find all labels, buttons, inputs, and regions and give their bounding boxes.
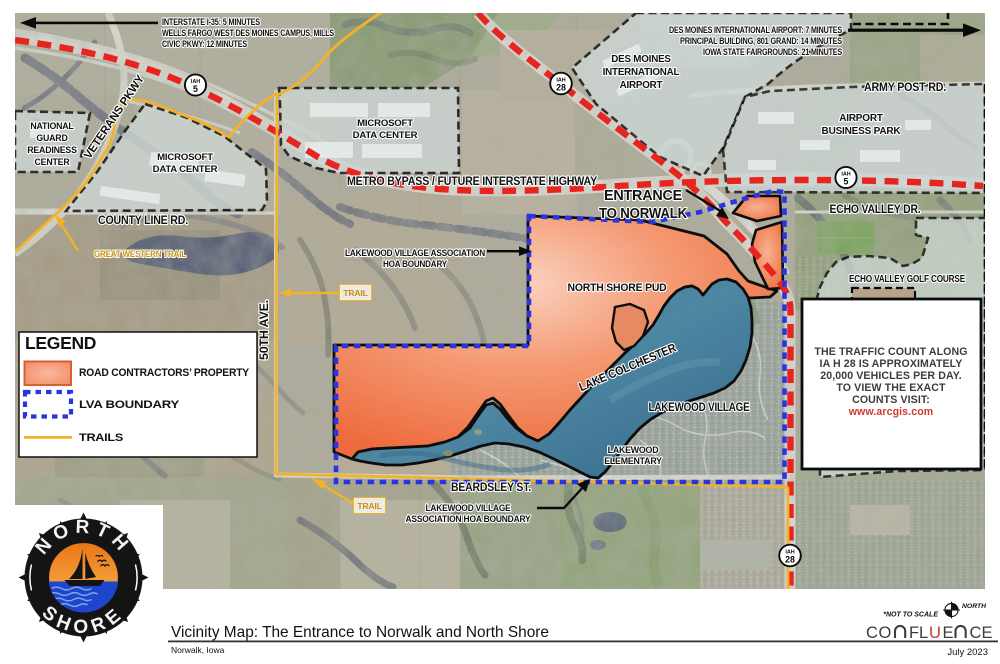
svg-text:DATA CENTER: DATA CENTER bbox=[153, 164, 218, 175]
svg-text:AIRPORT: AIRPORT bbox=[620, 80, 663, 91]
svg-text:MICROSOFT: MICROSOFT bbox=[357, 118, 413, 129]
svg-text:TRAILS: TRAILS bbox=[79, 432, 123, 444]
svg-text:LAKEWOOD: LAKEWOOD bbox=[608, 445, 659, 455]
svg-text:METRO BYPASS / FUTURE INTERSTA: METRO BYPASS / FUTURE INTERSTATE HIGHWAY bbox=[347, 174, 597, 188]
svg-text:C: C bbox=[866, 624, 878, 642]
svg-text:BUSINESS PARK: BUSINESS PARK bbox=[822, 126, 902, 137]
svg-text:DATA CENTER: DATA CENTER bbox=[353, 130, 418, 141]
svg-text:TRAIL: TRAIL bbox=[357, 501, 381, 511]
svg-text:THE TRAFFIC COUNT ALONG: THE TRAFFIC COUNT ALONG bbox=[814, 346, 967, 358]
svg-text:PRINCIPAL BUILDING, 801 GRAND:: PRINCIPAL BUILDING, 801 GRAND: 14 MINUTE… bbox=[680, 36, 842, 46]
svg-text:IOWA STATE FAIRGROUNDS: 21 MIN: IOWA STATE FAIRGROUNDS: 21 MINUTES bbox=[703, 47, 842, 57]
svg-text:ARMY POST RD.: ARMY POST RD. bbox=[864, 82, 946, 94]
svg-text:INTERSTATE I-35: 5 MINUTES: INTERSTATE I-35: 5 MINUTES bbox=[162, 17, 260, 27]
svg-text:ELEMENTARY: ELEMENTARY bbox=[604, 456, 662, 466]
svg-text:Norwalk, Iowa: Norwalk, Iowa bbox=[171, 645, 225, 655]
svg-text:ENTRANCE: ENTRANCE bbox=[604, 188, 683, 204]
svg-text:20,000 VEHICLES PER DAY.: 20,000 VEHICLES PER DAY. bbox=[820, 370, 962, 382]
svg-text:ASSOCIATION HOA BOUNDARY: ASSOCIATION HOA BOUNDARY bbox=[406, 514, 531, 524]
svg-text:IA H 28 IS APPROXIMATELY: IA H 28 IS APPROXIMATELY bbox=[820, 358, 963, 370]
svg-text:NORTH SHORE PUD: NORTH SHORE PUD bbox=[568, 282, 667, 294]
svg-text:READINESS: READINESS bbox=[27, 145, 77, 155]
svg-text:E: E bbox=[982, 624, 993, 642]
svg-text:LAKEWOOD VILLAGE ASSOCIATION: LAKEWOOD VILLAGE ASSOCIATION bbox=[345, 248, 485, 258]
svg-text:28: 28 bbox=[556, 83, 566, 93]
svg-text:TO VIEW THE EXACT: TO VIEW THE EXACT bbox=[836, 382, 946, 394]
svg-text:Vicinity Map: The Entrance to: Vicinity Map: The Entrance to Norwalk an… bbox=[171, 624, 549, 641]
svg-text:LAKEWOOD VILLAGE: LAKEWOOD VILLAGE bbox=[649, 402, 750, 414]
svg-text:LVA BOUNDARY: LVA BOUNDARY bbox=[79, 399, 180, 411]
svg-text:L: L bbox=[919, 624, 928, 642]
svg-text:CENTER: CENTER bbox=[35, 157, 71, 167]
svg-text:5: 5 bbox=[193, 84, 198, 94]
svg-text:COUNTS VISIT:: COUNTS VISIT: bbox=[852, 394, 930, 406]
svg-text:CIVIC PKWY: 12 MINUTES: CIVIC PKWY: 12 MINUTES bbox=[162, 39, 247, 49]
svg-text:*NOT TO SCALE: *NOT TO SCALE bbox=[883, 612, 938, 619]
svg-text:ECHO VALLEY DR.: ECHO VALLEY DR. bbox=[830, 204, 921, 216]
svg-text:ECHO VALLEY GOLF COURSE: ECHO VALLEY GOLF COURSE bbox=[849, 274, 965, 285]
svg-text:BEARDSLEY ST.: BEARDSLEY ST. bbox=[451, 482, 531, 494]
svg-text:www.arcgis.com: www.arcgis.com bbox=[848, 406, 934, 418]
svg-text:NATIONAL: NATIONAL bbox=[30, 121, 74, 131]
svg-text:TO NORWALK: TO NORWALK bbox=[599, 206, 688, 222]
svg-text:LAKEWOOD VILLAGE: LAKEWOOD VILLAGE bbox=[426, 503, 511, 513]
svg-text:July 2023: July 2023 bbox=[947, 647, 988, 658]
svg-text:INTERNATIONAL: INTERNATIONAL bbox=[603, 67, 680, 78]
svg-text:DES MOINES: DES MOINES bbox=[611, 54, 671, 65]
svg-text:DES MOINES INTERNATIONAL AIRPO: DES MOINES INTERNATIONAL AIRPORT: 7 MINU… bbox=[669, 25, 842, 35]
svg-text:GREAT WESTERN TRAIL: GREAT WESTERN TRAIL bbox=[94, 249, 187, 259]
svg-text:TRAIL: TRAIL bbox=[343, 288, 367, 298]
svg-text:ROAD CONTRACTORS’ PROPERTY: ROAD CONTRACTORS’ PROPERTY bbox=[79, 367, 250, 379]
svg-text:E: E bbox=[943, 624, 954, 642]
svg-text:WELLS FARGO WEST DES MOINES CA: WELLS FARGO WEST DES MOINES CAMPUS, MILL… bbox=[162, 28, 334, 38]
svg-text:U: U bbox=[929, 624, 941, 642]
svg-text:NORTH: NORTH bbox=[962, 603, 987, 610]
svg-text:AIRPORT: AIRPORT bbox=[839, 113, 883, 124]
svg-text:HOA BOUNDARY: HOA BOUNDARY bbox=[383, 259, 447, 269]
svg-text:C: C bbox=[970, 624, 982, 642]
svg-text:F: F bbox=[909, 624, 919, 642]
svg-text:50TH AVE.: 50TH AVE. bbox=[259, 300, 271, 360]
svg-text:O: O bbox=[879, 624, 892, 642]
svg-text:COUNTY LINE RD.: COUNTY LINE RD. bbox=[98, 215, 188, 227]
svg-text:MICROSOFT: MICROSOFT bbox=[157, 152, 213, 163]
svg-text:LEGEND: LEGEND bbox=[25, 333, 96, 353]
svg-text:5: 5 bbox=[844, 177, 849, 187]
svg-text:GUARD: GUARD bbox=[36, 133, 67, 143]
svg-text:28: 28 bbox=[785, 555, 795, 565]
